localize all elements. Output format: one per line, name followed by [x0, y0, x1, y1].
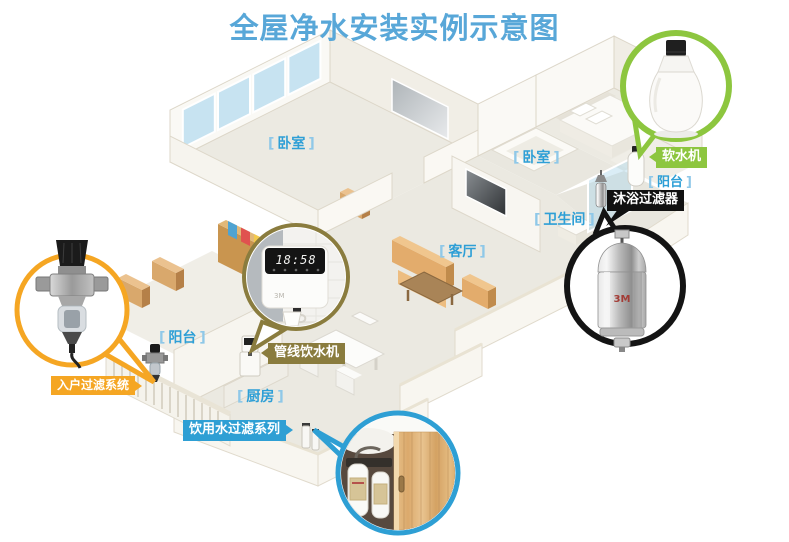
room-name: 卧室	[277, 136, 305, 152]
drinking-filter-label: 饮用水过滤系列	[183, 420, 286, 441]
room-label-living-room: [客厅]	[436, 241, 489, 261]
whole-house-water-diagram: 3M	[0, 0, 789, 542]
room-label-bedroom1: [卧室]	[265, 133, 318, 153]
pipeline-dispenser-label: 管线饮水机	[268, 343, 345, 364]
bracket-right: ]	[585, 212, 597, 228]
bracket-right: ]	[274, 389, 286, 405]
shower-filter-label: 沐浴过滤器	[607, 190, 684, 211]
bracket-left: [	[436, 244, 448, 260]
softener-label: 软水机	[656, 147, 707, 168]
room-name: 厨房	[246, 389, 274, 405]
room-label-bathroom: [卫生间]	[531, 209, 598, 229]
bracket-left: [	[156, 330, 168, 346]
bracket-left: [	[510, 150, 522, 166]
bracket-left: [	[645, 175, 657, 190]
bracket-left: [	[234, 389, 246, 405]
shower-filter-brand: 3M	[614, 294, 631, 305]
dispenser-clock: 18:58	[275, 253, 316, 267]
bracket-right: ]	[196, 330, 208, 346]
room-name: 卫生间	[543, 212, 585, 228]
room-label-balcony-left: [阳台]	[156, 327, 209, 347]
room-name: 客厅	[448, 244, 476, 260]
room-label-balcony-right: [阳台]	[645, 171, 695, 190]
bracket-right: ]	[476, 244, 488, 260]
isometric-floorplan: 3M	[0, 0, 789, 542]
bracket-right: ]	[550, 150, 562, 166]
page-title: 全屋净水安装实例示意图	[0, 5, 789, 47]
room-name: 阳台	[168, 330, 196, 346]
bracket-left: [	[531, 212, 543, 228]
bracket-left: [	[265, 136, 277, 152]
room-name: 阳台	[657, 175, 683, 190]
entry-filter-label: 入户过滤系统	[51, 376, 135, 395]
room-label-bedroom2: [卧室]	[510, 147, 563, 167]
room-name: 卧室	[522, 150, 550, 166]
bracket-right: ]	[305, 136, 317, 152]
bracket-right: ]	[683, 175, 695, 190]
dispenser-brand: 3M	[274, 292, 285, 300]
room-label-kitchen: [厨房]	[234, 386, 287, 406]
